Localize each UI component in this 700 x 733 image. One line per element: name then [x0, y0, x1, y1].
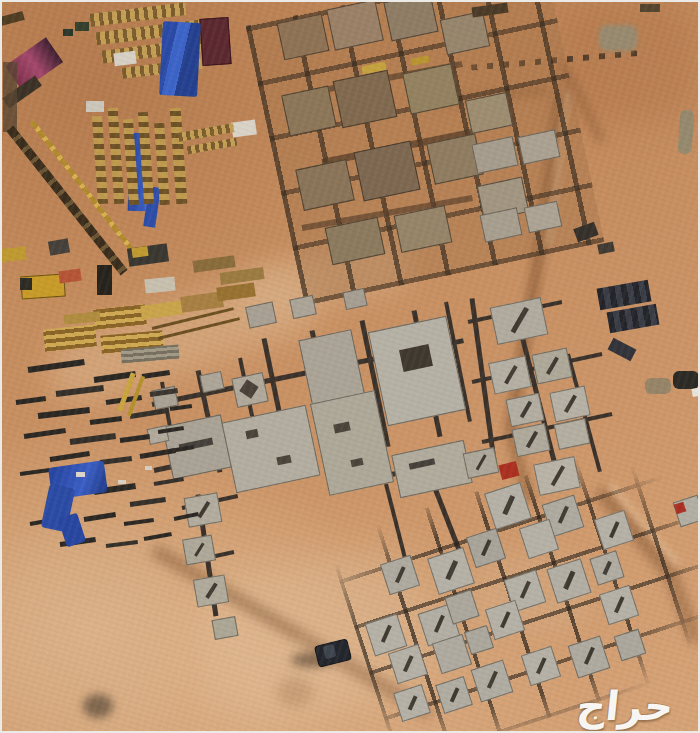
steel-piece [50, 451, 91, 462]
rebar-bundle [519, 401, 531, 418]
truss-stack [0, 11, 25, 26]
debris-white [691, 387, 700, 397]
aerial-photo-construction-site: حراج [0, 0, 700, 733]
debris [48, 238, 70, 255]
equipment-gray [144, 276, 175, 293]
steel-piece [144, 532, 173, 541]
scrub-patch [75, 22, 89, 31]
steel-piece [84, 512, 117, 522]
concrete-pad [463, 447, 500, 479]
rebar-bundle [520, 582, 531, 600]
steel-piece [70, 433, 117, 445]
rebar-bundle [487, 672, 498, 690]
steel-column-rack [108, 108, 125, 204]
ground-stain [83, 694, 113, 718]
crane-truck-cab [20, 278, 32, 290]
rebar-bundle [563, 571, 575, 590]
concrete-pad [554, 418, 591, 450]
debris [3, 62, 17, 132]
car-windshield [322, 643, 336, 658]
concrete-pad [342, 288, 367, 310]
steel-piece [20, 468, 51, 476]
rebar-bundle [395, 566, 406, 583]
crate-white [113, 50, 136, 66]
truss-stack [187, 138, 238, 155]
steel-column-rack [92, 116, 108, 204]
scrub-patch [63, 29, 73, 36]
steel-column-rack [169, 108, 187, 205]
rebar-bundle [197, 501, 210, 518]
concrete-pad [211, 616, 238, 640]
machine-yellow [0, 246, 27, 262]
rebar-bundle [403, 655, 414, 672]
container-maroon [199, 17, 231, 66]
concrete-slab [221, 405, 320, 493]
steel-piece [130, 408, 169, 419]
steel-piece [130, 497, 167, 507]
rebar-bundle [407, 695, 417, 711]
concrete-pad [184, 492, 223, 527]
steel-piece [154, 477, 185, 486]
rebar-bundle [564, 395, 577, 413]
rebar-bundle [584, 648, 595, 666]
rebar-bundle [536, 657, 547, 674]
rebar-bundle [614, 596, 625, 613]
glint [145, 466, 152, 470]
rebar-bundle [603, 560, 612, 575]
rebar-bundle [476, 455, 487, 471]
glint [76, 472, 85, 477]
sand-patch-light [2, 542, 162, 733]
rebar-bundle [502, 495, 515, 515]
steel-piece [24, 428, 67, 439]
rebar-bundle [609, 521, 620, 538]
rebar-bundle [445, 560, 458, 580]
concrete-pad [490, 297, 549, 345]
machine-orange [58, 269, 81, 284]
steel-piece [100, 456, 133, 465]
rebar-bundle [558, 507, 569, 525]
rebar-bundle [525, 431, 537, 448]
steel-piece [90, 416, 123, 425]
scrub-patch [645, 378, 671, 394]
tarp-blue [159, 21, 201, 97]
rebar-bundle [504, 365, 518, 384]
haraj-watermark: حراج [547, 682, 700, 732]
concrete-pad [182, 535, 216, 566]
debris [597, 241, 615, 254]
formwork-panel [607, 337, 636, 361]
scrub-patch [599, 25, 637, 51]
debris [640, 4, 660, 12]
steel-piece [120, 434, 151, 443]
concrete-pad [511, 423, 550, 457]
ground-stain [277, 677, 313, 707]
rebar-bundle [449, 687, 459, 703]
red-marker [498, 460, 519, 479]
rebar-bundle [434, 616, 445, 634]
rebar-bundle [194, 542, 205, 557]
concrete-pad [531, 348, 572, 385]
pallet [192, 255, 235, 273]
rebar-bundle [500, 611, 511, 628]
steel-piece [38, 407, 91, 419]
rebar-bundle [511, 307, 529, 333]
crate-white [86, 101, 104, 112]
scrub-patch [677, 110, 694, 155]
concrete-pad [505, 393, 544, 427]
steel-piece [16, 396, 47, 405]
concrete-pad [488, 355, 532, 394]
glint [118, 480, 126, 484]
rebar-bundle [205, 583, 217, 599]
steel-piece [124, 518, 155, 526]
concrete-slab [391, 440, 473, 498]
debris [673, 371, 699, 389]
rebar-bundle [481, 539, 492, 556]
rebar-bundle [546, 357, 559, 375]
crate-white [231, 119, 257, 137]
rebar-bundle [381, 626, 392, 644]
crane-mast-base [97, 265, 112, 295]
concrete-pad [193, 574, 229, 607]
